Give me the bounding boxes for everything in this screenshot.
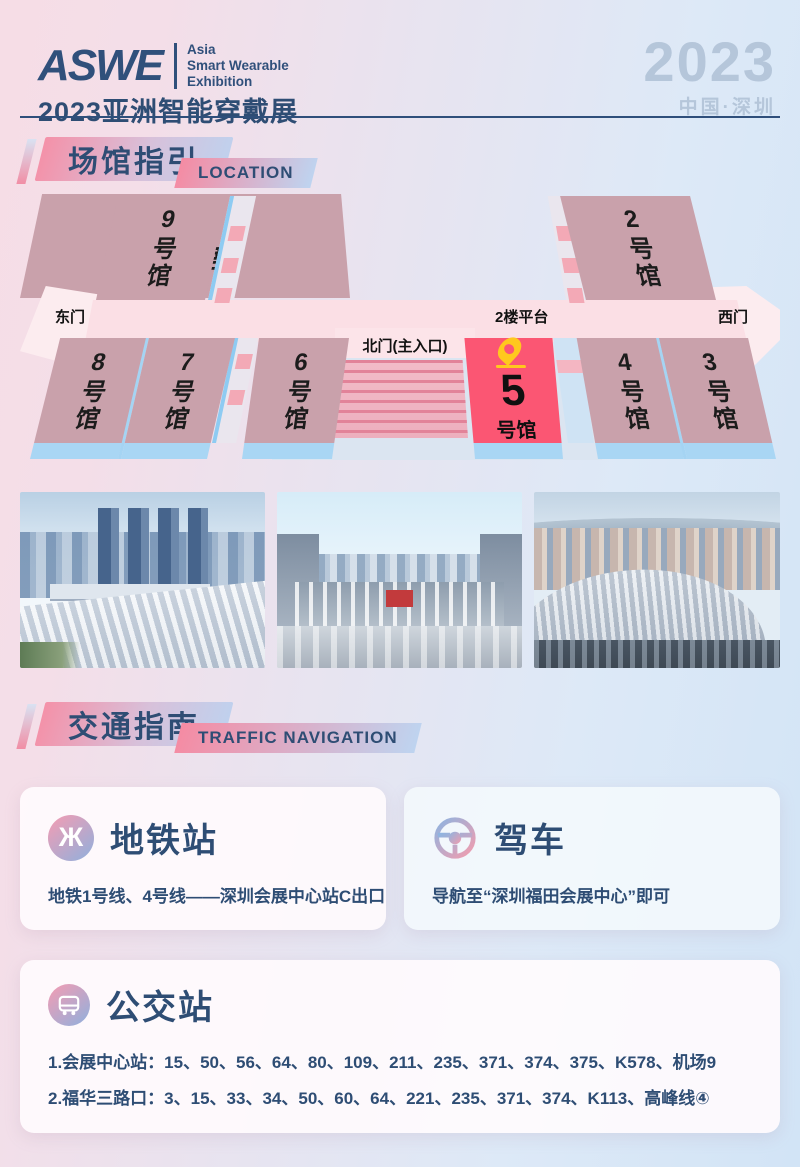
west-gate-label: 西门 xyxy=(718,306,748,327)
bus-route-line-2: 2.福华三路口：3、15、33、34、50、60、64、221、235、371、… xyxy=(48,1081,780,1117)
section-traffic-heading: 交通指南 TRAFFIC NAVIGATION xyxy=(0,702,800,762)
hall-4-base xyxy=(595,443,684,459)
hall-9: 9号馆 xyxy=(96,196,227,300)
drive-title: 驾车 xyxy=(494,813,566,862)
drive-card-header: 驾车 xyxy=(432,813,780,862)
heading-accent-bar xyxy=(16,139,36,184)
hall-5-suffix: 号馆 xyxy=(495,414,538,443)
hall-8-label: 8号馆 xyxy=(69,349,114,433)
location-pin-icon xyxy=(493,333,525,366)
traffic-heading-tag: TRAFFIC NAVIGATION xyxy=(174,723,421,753)
hall-6-base xyxy=(242,443,334,459)
steering-wheel-icon xyxy=(432,815,478,861)
bus-route-line-1: 1.会展中心站：15、50、56、64、80、109、211、235、371、3… xyxy=(48,1045,780,1081)
hall-3-label: 3号馆 xyxy=(694,349,737,433)
hall-5-highlighted: 5 号馆 xyxy=(464,338,563,459)
location-heading-tag: LOCATION xyxy=(174,158,317,188)
corridor-bridge xyxy=(221,258,239,273)
hall-6: 6号馆 xyxy=(242,338,349,459)
heading-accent-bar xyxy=(16,704,36,749)
hall-5-face: 5 号馆 xyxy=(464,338,561,443)
platform-label: 2楼平台 xyxy=(495,306,548,327)
metro-title: 地铁站 xyxy=(110,813,218,862)
metro-icon: Ж xyxy=(48,815,94,861)
hall-4-label: 4号馆 xyxy=(610,349,649,433)
bus-routes: 1.会展中心站：15、50、56、64、80、109、211、235、371、3… xyxy=(48,1045,780,1117)
exhibition-title: 2023亚洲智能穿戴展 xyxy=(38,90,298,129)
hall-6-label: 6号馆 xyxy=(279,349,315,433)
tagline-line3: Exhibition xyxy=(187,74,289,90)
city-label: 中国·深圳 xyxy=(476,92,776,119)
venue-map: 北门(主入口) 9号馆 南门 1号馆 2号馆 东门 2楼平台 西门 8号馆 7号… xyxy=(20,188,780,472)
hall-7-base xyxy=(121,443,211,459)
bus-icon xyxy=(48,984,90,1026)
traffic-tag-text: TRAFFIC NAVIGATION xyxy=(198,728,398,748)
logo-tagline: Asia Smart Wearable Exhibition xyxy=(187,42,289,91)
bus-title: 公交站 xyxy=(106,980,214,1029)
corridor-bridge xyxy=(214,288,232,303)
photo3-base xyxy=(534,640,780,668)
hall-7-label: 7号馆 xyxy=(158,349,201,433)
bus-card: 公交站 1.会展中心站：15、50、56、64、80、109、211、235、3… xyxy=(20,960,780,1133)
logo-divider xyxy=(174,43,177,89)
photo1-greenery xyxy=(20,642,80,668)
corridor-bridge xyxy=(235,354,253,369)
corridor-bridge xyxy=(228,226,246,241)
hall-3-base xyxy=(683,443,776,459)
photo-aerial-skyline xyxy=(20,492,265,668)
tagline-line1: Asia xyxy=(187,42,289,58)
hall-5-number: 5 xyxy=(499,368,528,414)
aswe-logo: ASWE xyxy=(38,44,162,88)
drive-card: 驾车 导航至“深圳福田会展中心”即可 xyxy=(404,787,780,930)
hall-5-base xyxy=(474,443,563,459)
brand-lockup: ASWE Asia Smart Wearable Exhibition xyxy=(38,42,289,91)
metro-card: Ж 地铁站 地铁1号线、4号线——深圳会展中心站C出口 xyxy=(20,787,386,930)
hall-8-base xyxy=(30,443,122,459)
bus-card-header: 公交站 xyxy=(48,980,780,1029)
photo2-red-banner xyxy=(386,590,413,607)
photo-curved-roof-city xyxy=(534,492,780,668)
north-gate-label: 北门(主入口) xyxy=(363,338,448,355)
location-tag-text: LOCATION xyxy=(198,163,294,183)
north-gate-area: 北门(主入口) xyxy=(335,328,475,358)
corridor-bridge xyxy=(227,390,245,405)
metro-card-header: Ж 地铁站 xyxy=(48,813,386,862)
photo-entrance-plaza xyxy=(277,492,522,668)
hall-9-label: 9号馆 xyxy=(141,206,183,290)
entrance-stairs xyxy=(332,360,468,438)
hall-6-face: 6号馆 xyxy=(244,338,349,443)
hall-2: 2号馆 xyxy=(560,196,716,300)
metro-description: 地铁1号线、4号线——深圳会展中心站C出口 xyxy=(48,882,386,907)
east-gate-label: 东门 xyxy=(55,306,85,327)
tagline-line2: Smart Wearable xyxy=(187,58,289,74)
exhibition-poster: { "header": { "logo": "ASWE", "logo_tagl… xyxy=(0,0,800,1167)
hall-2-label: 2号馆 xyxy=(616,206,661,290)
corridor-bridge xyxy=(567,288,585,303)
drive-description: 导航至“深圳福田会展中心”即可 xyxy=(432,882,780,907)
year-label: 2023 xyxy=(476,34,776,90)
pin-hole xyxy=(502,342,516,356)
photo2-plaza xyxy=(277,626,522,668)
